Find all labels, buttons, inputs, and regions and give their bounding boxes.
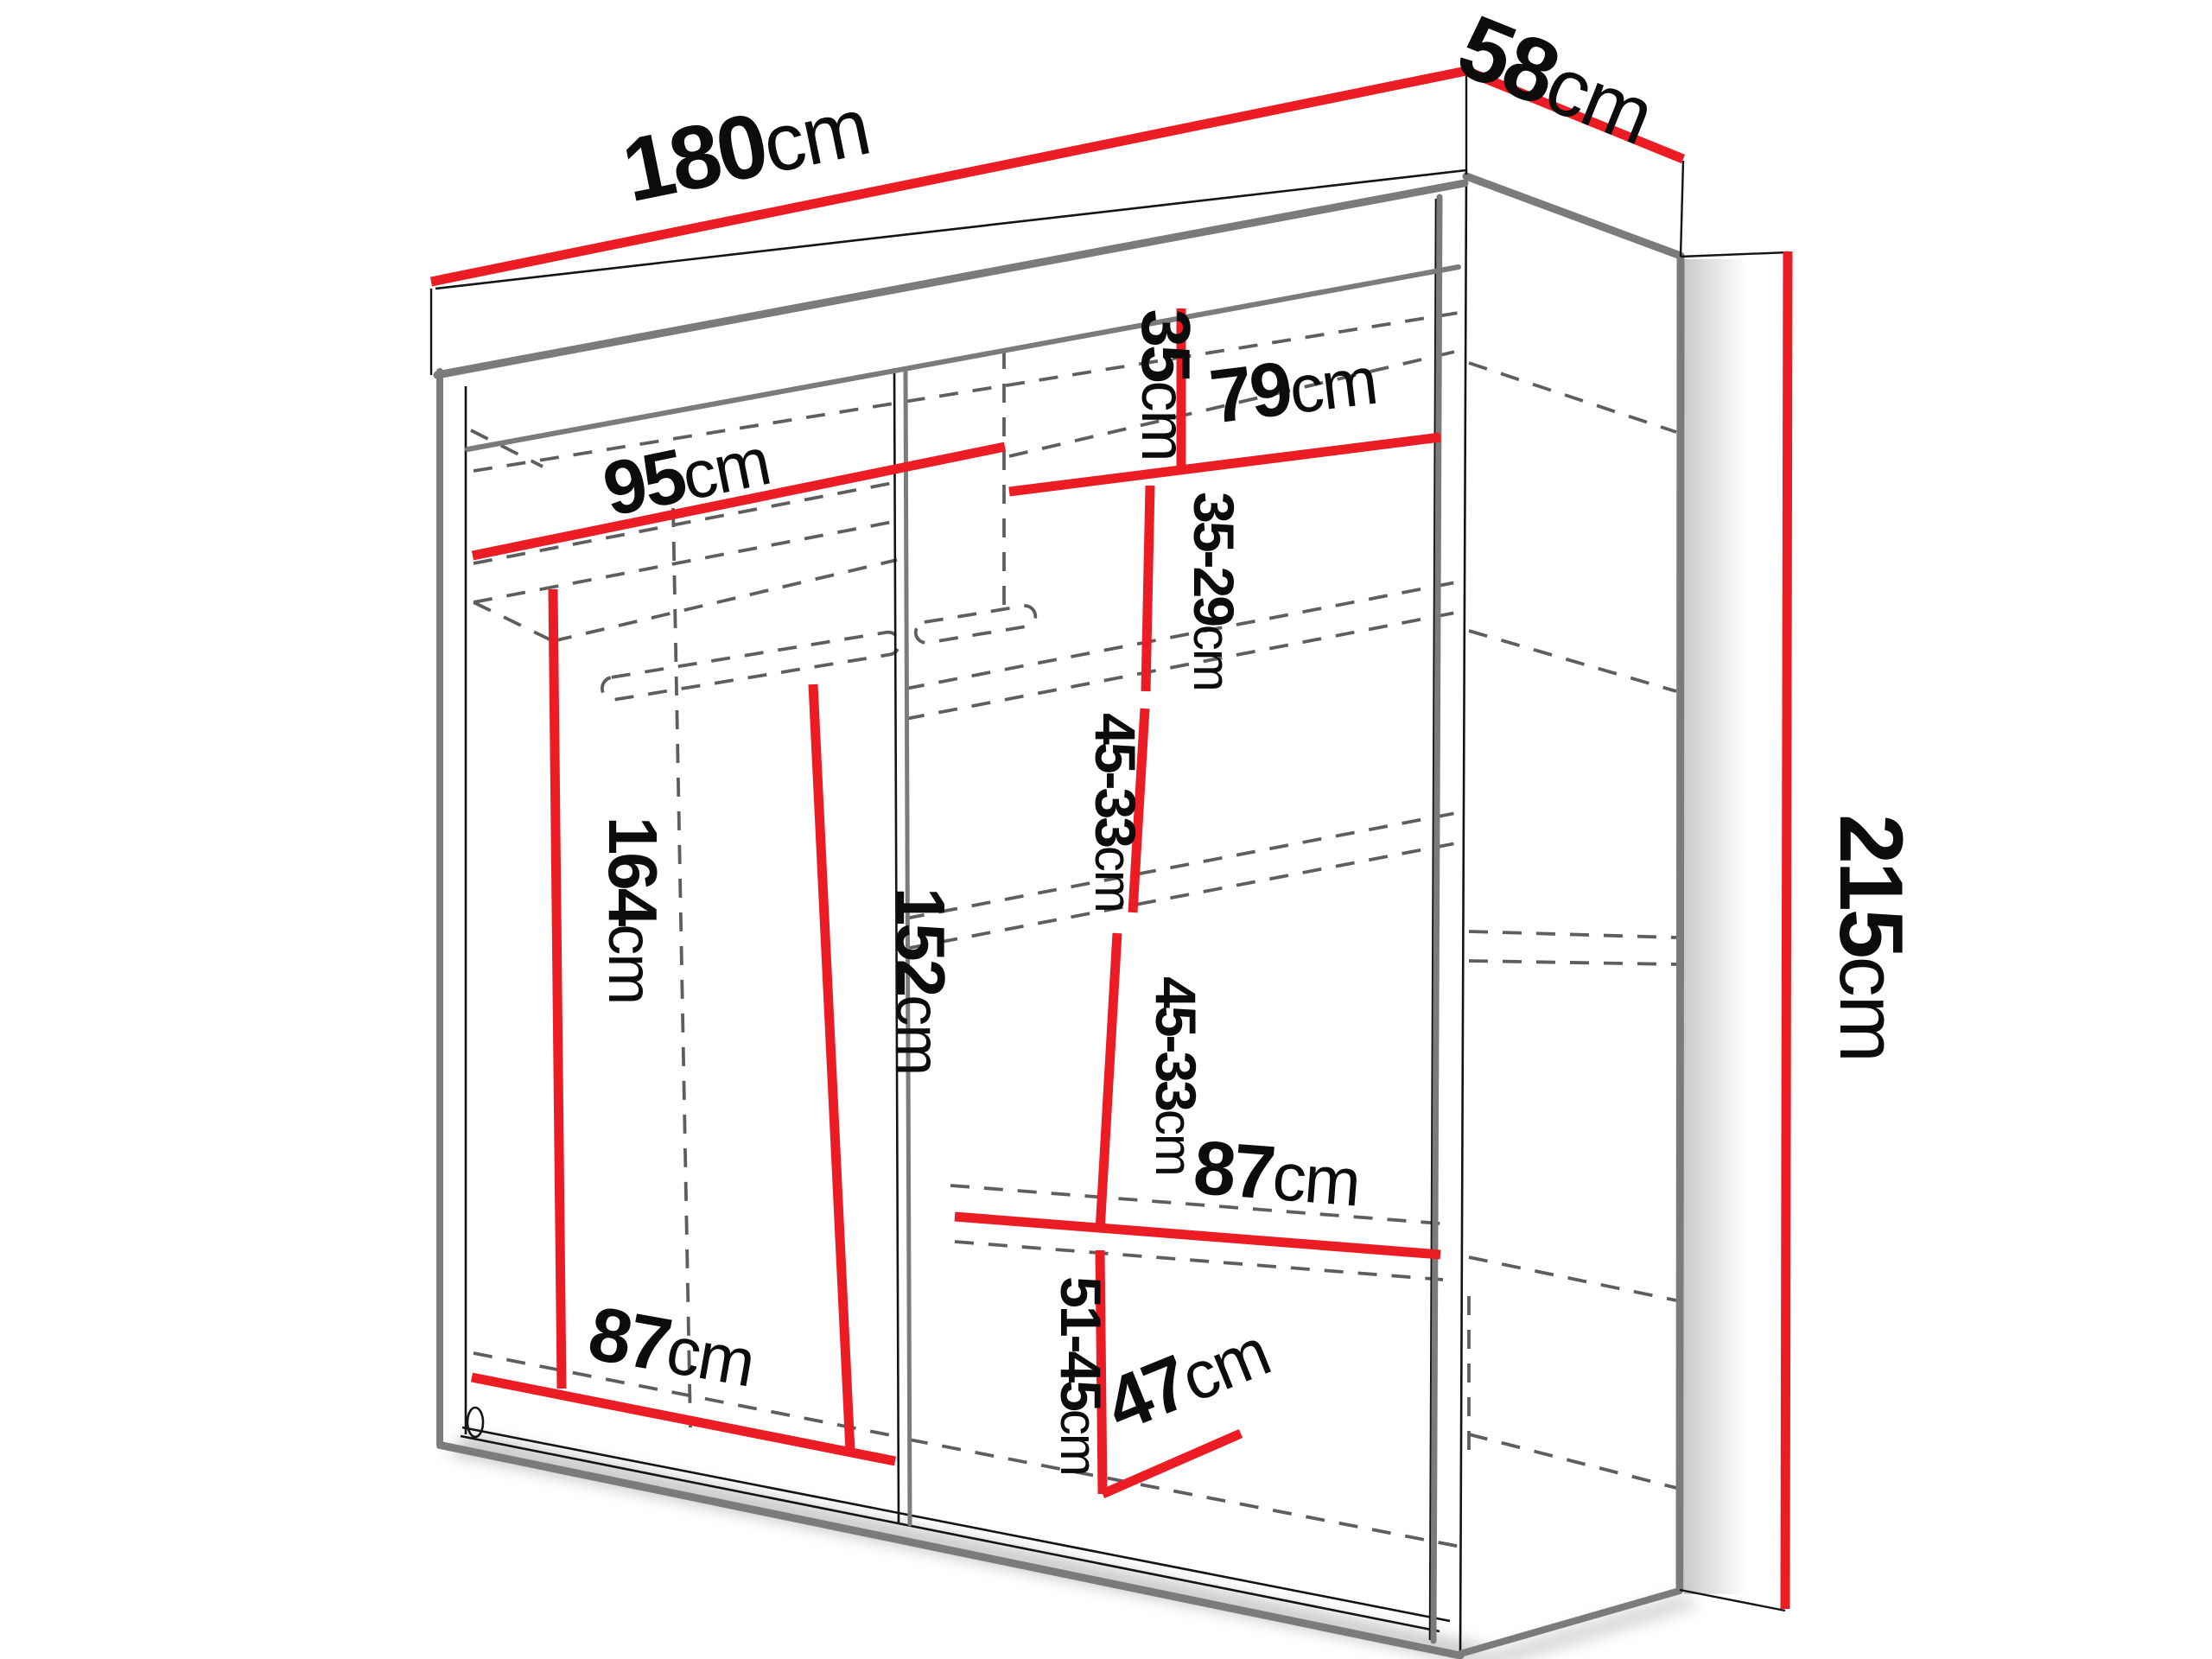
side-hidden-4 [1469, 961, 1676, 964]
floor-front-edge [461, 1436, 1440, 1631]
dim-line-hanging-164 [553, 589, 562, 1389]
caster-wheel [467, 1408, 483, 1437]
side-hidden-2 [1469, 631, 1676, 691]
label-left-top-width: 95cm [596, 415, 776, 532]
dim-line-hanging-152 [813, 684, 850, 1452]
side-hidden-1 [1469, 363, 1676, 432]
side-hidden-3 [1469, 931, 1676, 938]
label-depth-47: 47cm [1094, 1306, 1280, 1448]
label-gap-45-33-upper: 45-33cm [1084, 713, 1147, 912]
dim-line-gap-45-33-lower [1100, 933, 1117, 1231]
left-top-shelf-diagonal [474, 602, 553, 641]
top-opening-edge [437, 183, 1465, 375]
left-section-center-hidden [673, 508, 690, 1427]
ext-height-top [1681, 252, 1789, 257]
label-gap-35-29: 35-29cm [1182, 492, 1246, 690]
label-right-shelf-width-79: 79cm [1205, 334, 1381, 440]
side-hidden-5 [1469, 1257, 1676, 1300]
label-right-shelf-height-35: 35cm [1128, 309, 1205, 461]
ext-depth-back [1681, 161, 1683, 257]
dim-line-gap-35-29 [1146, 486, 1150, 691]
top-front-edge [435, 170, 1466, 289]
label-right-bottom-width-87: 87cm [1191, 1124, 1363, 1223]
side-top-edge [1466, 176, 1681, 256]
bottom-shadow [446, 1434, 1490, 1659]
dim-line-total-width [431, 71, 1466, 282]
left-top-shelf-front [474, 521, 897, 602]
diagram-canvas: 180cm 58cm 215cm 95cm 35cm 79cm 35-29cm … [0, 0, 2212, 1659]
right-hanging-rail [914, 604, 1037, 644]
label-hanging-164: 164cm [594, 817, 671, 1003]
right-shelf3-front [906, 842, 1460, 949]
plinth-top-edge [462, 1427, 1450, 1621]
dim-line-total-height [1785, 251, 1788, 1609]
right-panel-shadow [1684, 259, 1746, 1594]
front-right-edge [1460, 170, 1466, 1655]
bottom-outer-edge [442, 1446, 1460, 1656]
wardrobe-dimension-diagram: 180cm 58cm 215cm 95cm 35cm 79cm 35-29cm … [0, 0, 2212, 1659]
bottom-right-shadow [1462, 1595, 1700, 1659]
side-back-edge [1680, 256, 1681, 1590]
label-left-bottom-width-87: 87cm [582, 1290, 760, 1403]
side-hidden-6 [1469, 1434, 1676, 1488]
label-total-height: 215cm [1821, 814, 1921, 1061]
left-hanging-rail [601, 631, 901, 702]
label-total-depth: 58cm [1445, 0, 1668, 164]
label-hanging-152: 152cm [882, 887, 959, 1074]
right-shelf2-front [906, 612, 1460, 719]
right-shelf3-back [906, 812, 1460, 918]
dim-line-right-shelf-width-79 [1009, 437, 1440, 492]
left-top-shelf-underside [553, 560, 897, 641]
